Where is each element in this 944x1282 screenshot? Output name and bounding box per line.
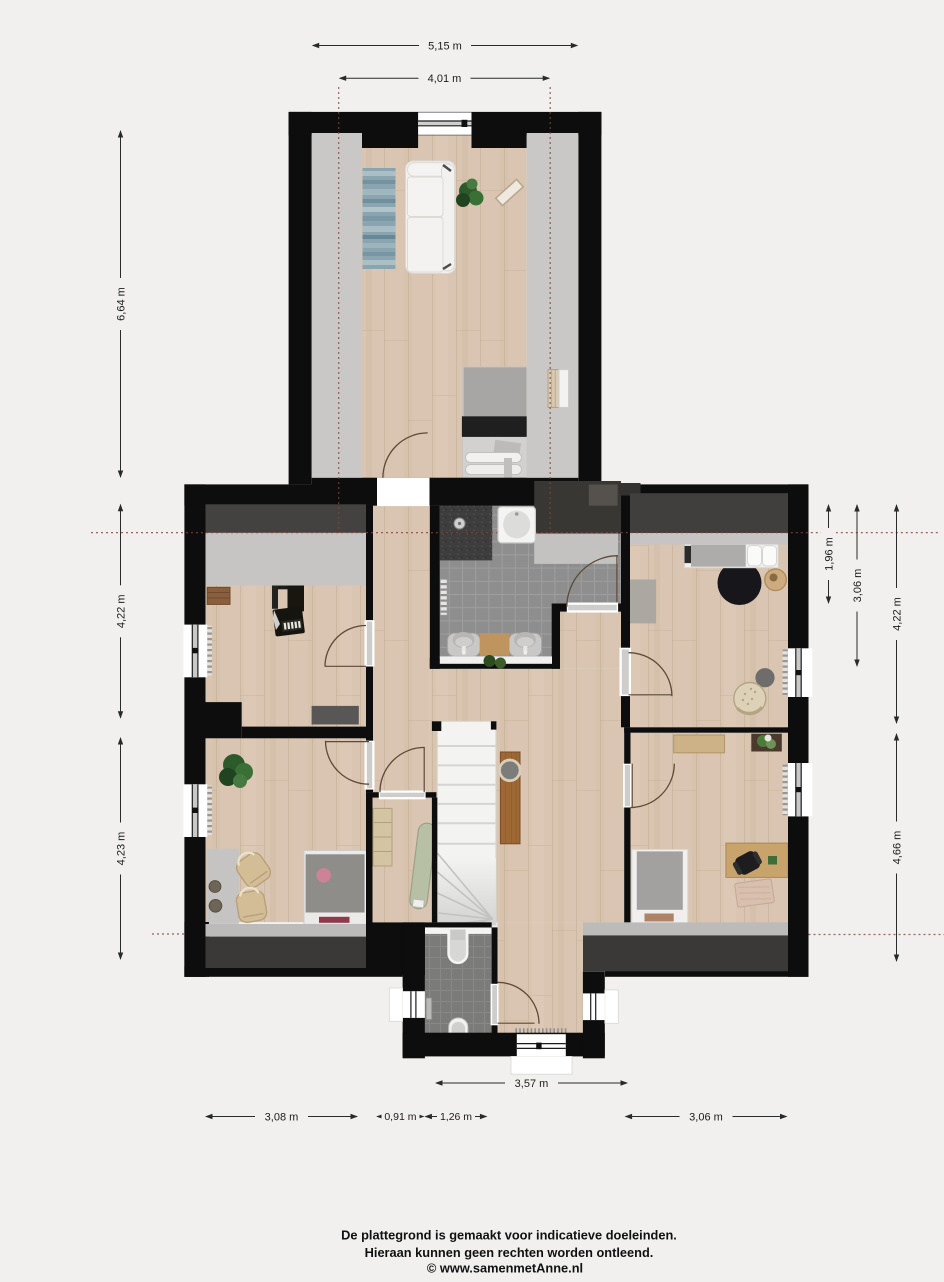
svg-text:6,64 m: 6,64 m [116,287,128,321]
svg-text:3,06 m: 3,06 m [689,1112,723,1124]
svg-text:4,01 m: 4,01 m [428,73,462,85]
svg-text:3,57 m: 3,57 m [515,1078,549,1090]
svg-text:1,96 m: 1,96 m [824,537,836,571]
svg-text:Hieraan kunnen geen rechten wo: Hieraan kunnen geen rechten worden ontle… [365,1245,654,1260]
svg-text:4,22 m: 4,22 m [116,594,128,628]
svg-text:© www.samenmetAnne.nl: © www.samenmetAnne.nl [427,1261,583,1276]
svg-text:5,15 m: 5,15 m [428,41,462,53]
svg-text:3,08 m: 3,08 m [265,1112,299,1124]
svg-text:4,23 m: 4,23 m [116,832,128,866]
svg-text:1,26 m: 1,26 m [440,1111,472,1123]
svg-text:3,06 m: 3,06 m [852,569,864,603]
svg-text:De plattegrond is gemaakt voor: De plattegrond is gemaakt voor indicatie… [341,1228,677,1243]
svg-text:0,91 m: 0,91 m [384,1111,416,1123]
svg-text:4,66 m: 4,66 m [892,831,904,865]
svg-text:4,22 m: 4,22 m [892,597,904,631]
